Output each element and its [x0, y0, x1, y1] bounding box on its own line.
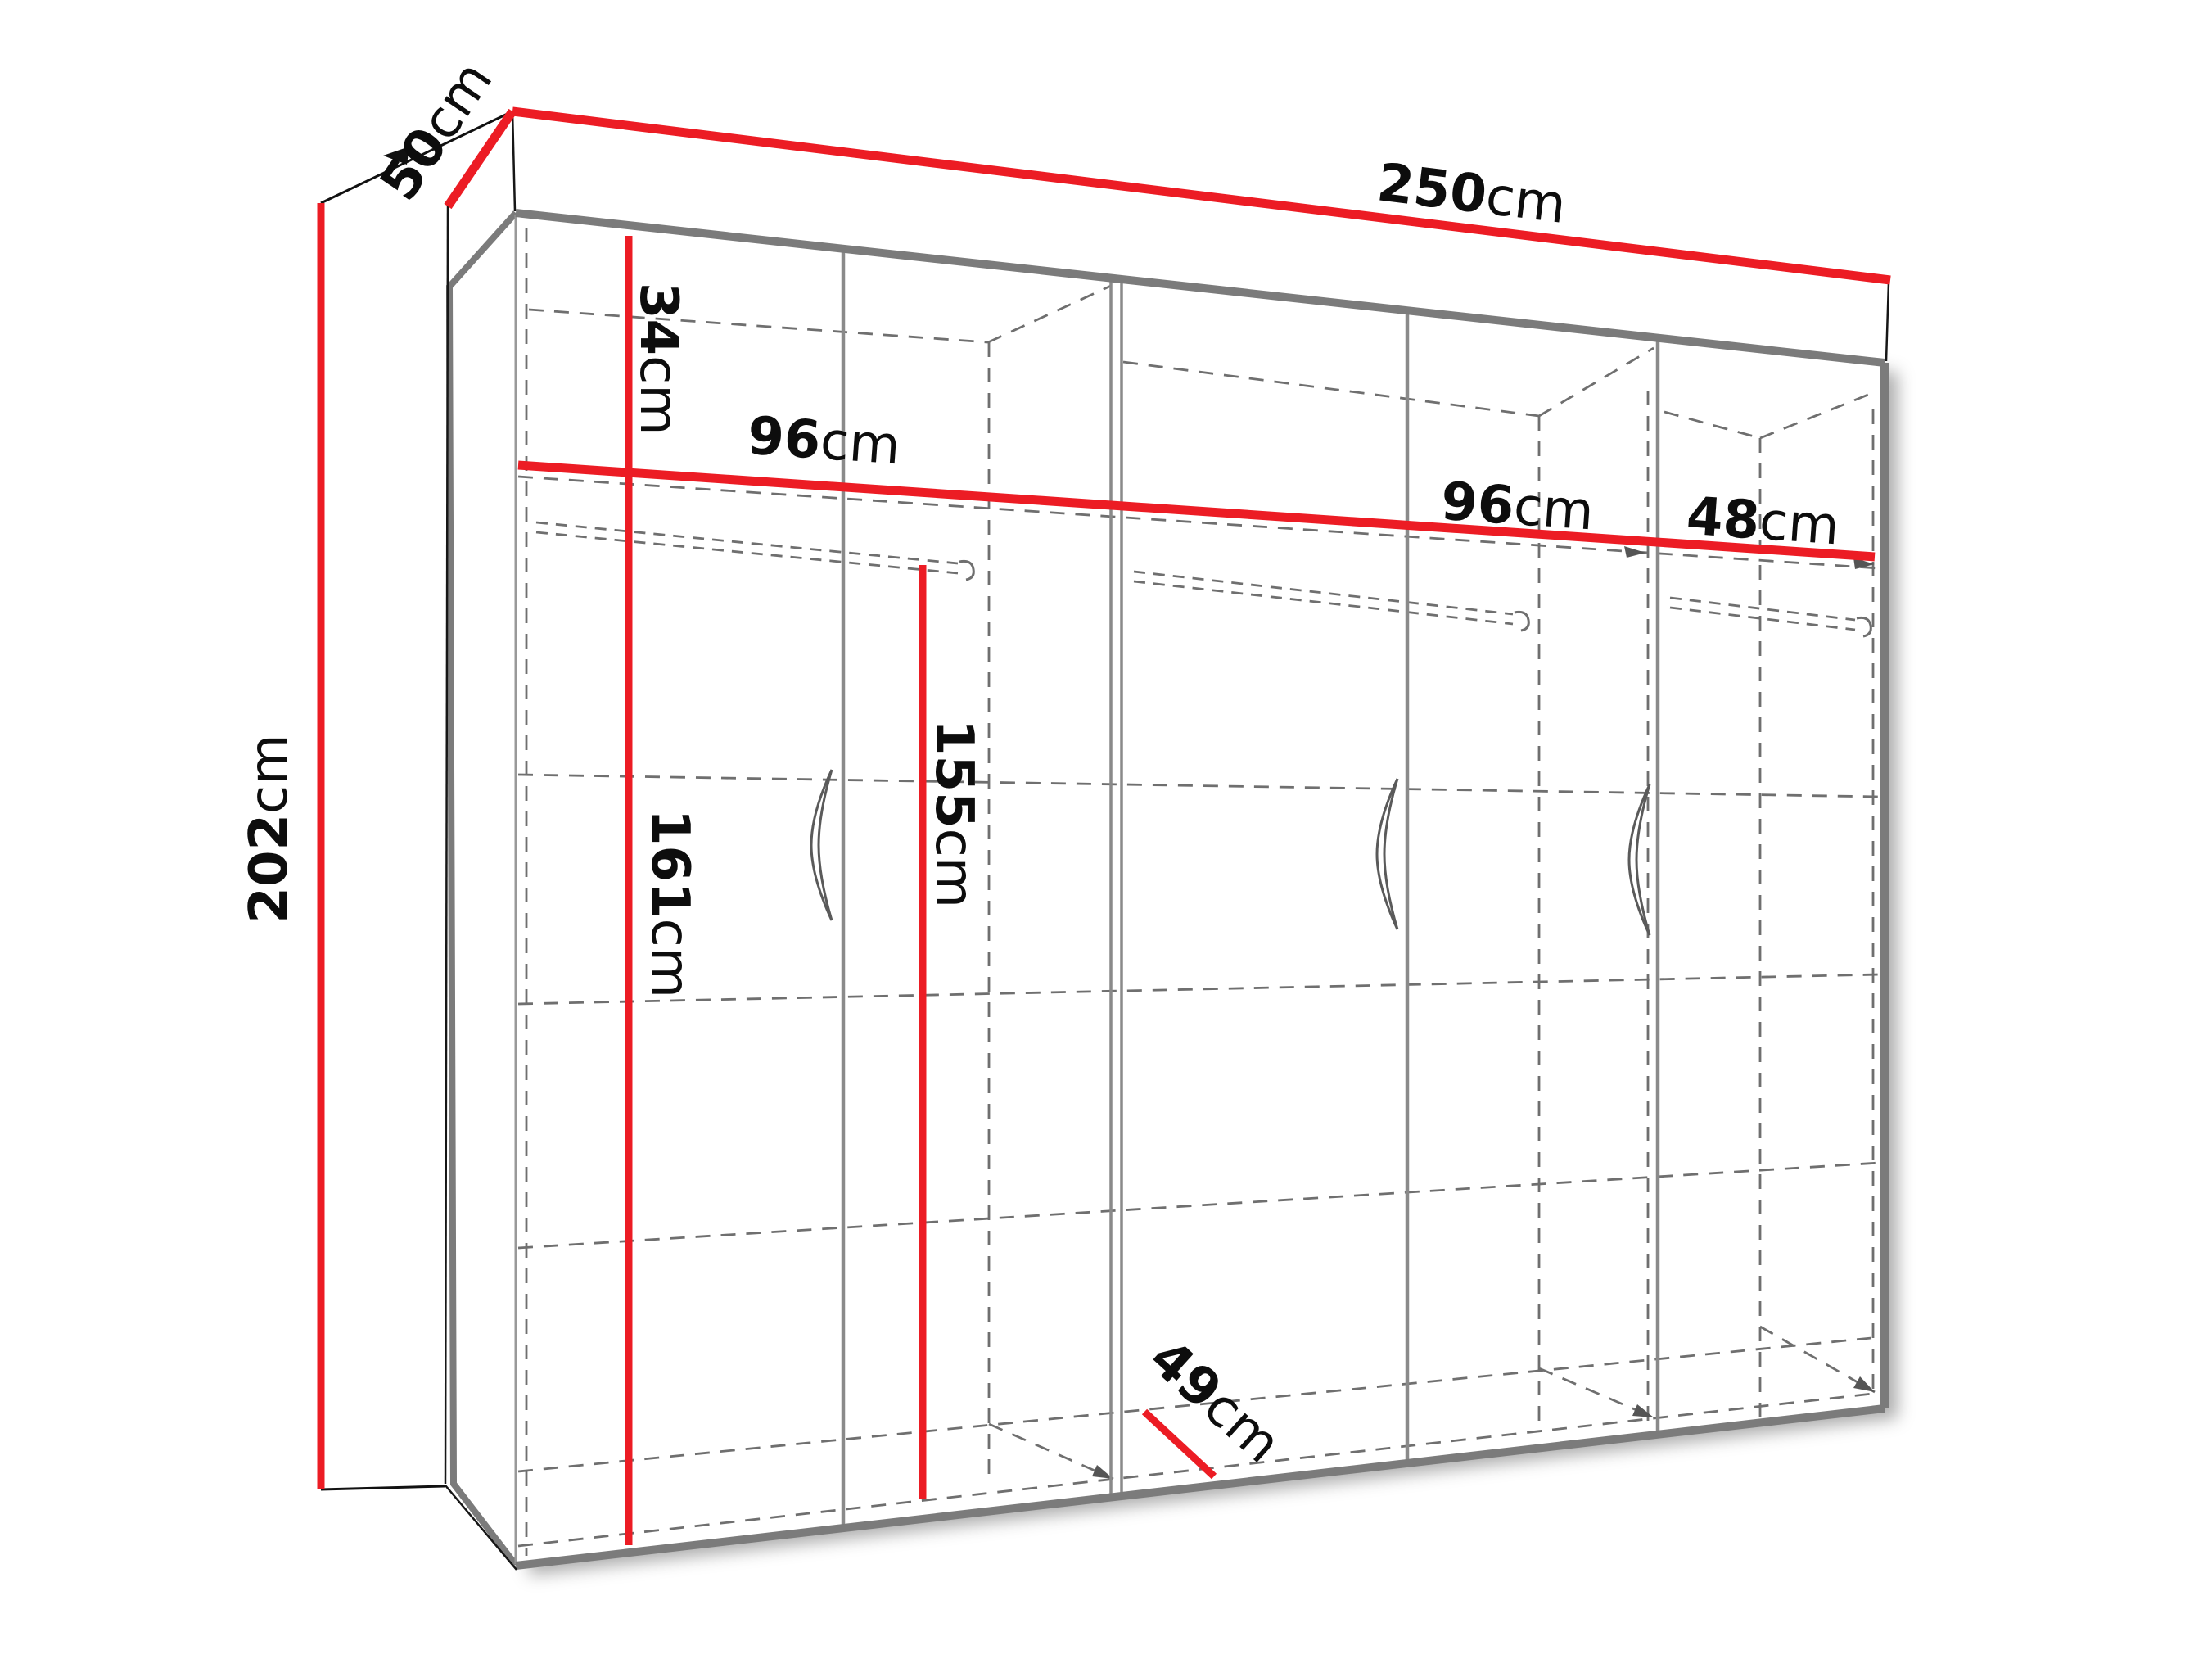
dimension-label-total-height: 202cm [239, 734, 300, 923]
height-bottom-extension-line [321, 1486, 445, 1489]
dimension-label-middle-section-width: 96cm [1439, 472, 1596, 543]
dimension-label-left-interior-height: 161cm [639, 809, 700, 998]
dimension-label-right-section-width: 48cm [1685, 486, 1841, 558]
wardrobe-dimension-diagram: 250cm 50cm 202cm 34cm 96cm 96cm 48cm 161… [0, 0, 2212, 1659]
dimension-label-hanging-space-height: 155cm [923, 719, 984, 908]
diagram-stage: 250cm 50cm 202cm 34cm 96cm 96cm 48cm 161… [0, 0, 2212, 1659]
dimension-label-top-section-height: 34cm [628, 283, 688, 436]
dimension-label-left-section-width: 96cm [746, 406, 902, 477]
